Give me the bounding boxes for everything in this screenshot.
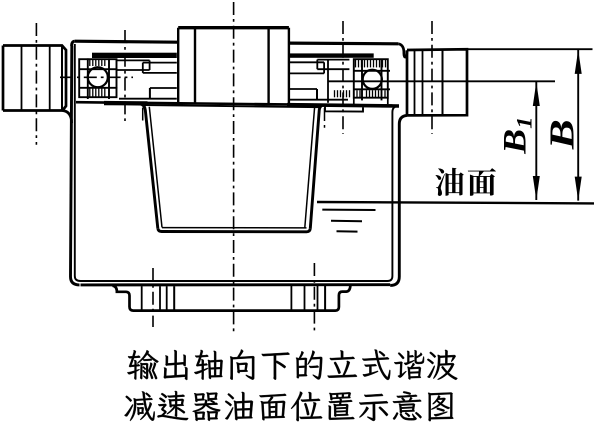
svg-text:B: B	[542, 119, 581, 150]
